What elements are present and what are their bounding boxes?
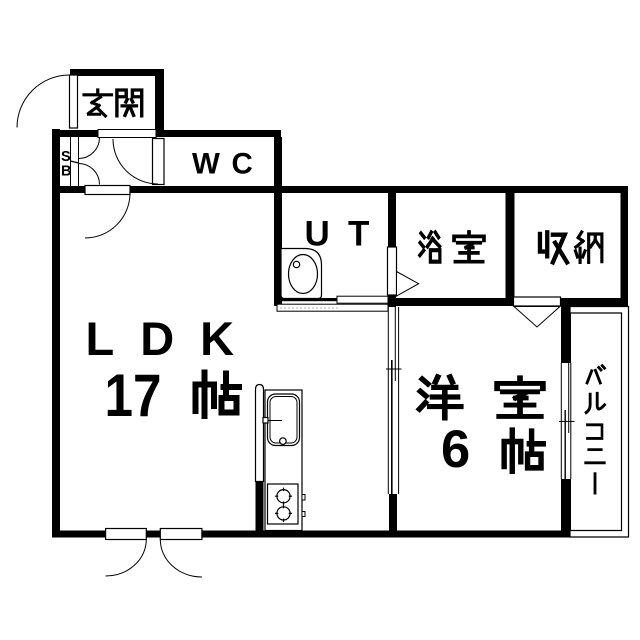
svg-text:6: 6 bbox=[441, 420, 470, 479]
svg-text:B: B bbox=[61, 164, 71, 180]
svg-text:LDK: LDK bbox=[86, 312, 261, 365]
svg-text:C: C bbox=[232, 148, 253, 181]
svg-text:T: T bbox=[348, 215, 369, 254]
svg-text:W: W bbox=[192, 148, 220, 181]
svg-text:17: 17 bbox=[105, 361, 162, 429]
svg-text:U: U bbox=[305, 215, 330, 254]
